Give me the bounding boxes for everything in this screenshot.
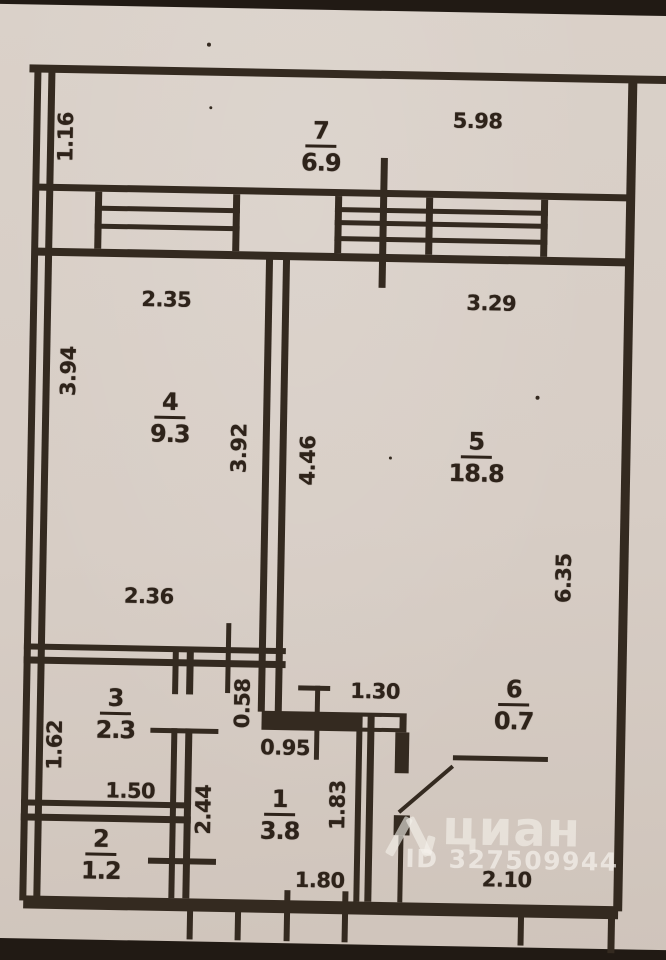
dim-room5-height-right: 6.35 [553, 553, 575, 603]
watermark-listing-id: ID 327509944 [405, 846, 619, 875]
room-label-1: 1 3.8 [260, 787, 301, 844]
window-a-jamb-left [94, 192, 102, 249]
room-number: 3 [100, 686, 131, 716]
dim-room3-height: 1.62 [44, 720, 66, 770]
wall-room3-room2-b [21, 813, 191, 823]
dim-room4-height-right: 3.92 [229, 423, 251, 473]
balcony-divider-line [379, 158, 388, 288]
room-label-3: 3 2.3 [95, 686, 136, 743]
entry-door-jamb [284, 890, 291, 941]
wall-closet3-right-upper [186, 651, 194, 694]
dim-room4-bottom: 2.36 [124, 586, 174, 608]
wall-room4-room5-left [258, 255, 273, 712]
dim-room4-width: 2.35 [141, 289, 191, 311]
bottom-tick [235, 906, 242, 940]
wall-room4-room5-right [275, 255, 290, 712]
wall-hall-duct-right [364, 714, 374, 902]
dimension-tick [148, 858, 216, 865]
wall-top [29, 64, 666, 84]
dim-room5-width: 3.29 [466, 293, 516, 315]
floor-plan-scan: 7 6.9 1.16 5.98 4 9.3 2.35 3.94 3.92 2.3… [0, 0, 666, 960]
room-number: 7 [306, 118, 337, 148]
dimension-tick [314, 686, 320, 760]
window-b-glass-line [335, 207, 548, 216]
room-number: 4 [155, 390, 186, 420]
wall-hall-duct-left [353, 713, 362, 901]
bottom-tick [607, 911, 615, 953]
dimension-tick [298, 685, 330, 691]
window-b-glass-line [335, 220, 548, 229]
dim-leg-height: 1.83 [327, 780, 349, 830]
room-area: 1.2 [81, 859, 121, 884]
wall-room4-bottom-b [24, 656, 286, 668]
ink-speck [209, 106, 212, 109]
dim-entry-wall: 1.80 [295, 870, 345, 892]
window-band-bottom [32, 247, 626, 266]
room-area: 6.9 [301, 150, 341, 175]
wall-right [613, 79, 637, 911]
window-a-glass-line [95, 206, 240, 214]
wall-bottom [23, 895, 618, 919]
room-label-4: 4 9.3 [150, 390, 191, 447]
dim-hall-height: 2.44 [193, 785, 215, 835]
wall-room4-bottom-a [24, 643, 286, 654]
room-label-5: 5 18.8 [448, 429, 504, 486]
room-area: 9.3 [150, 422, 190, 447]
window-a-glass-line [95, 224, 240, 232]
dim-room4-height-left: 3.94 [58, 346, 80, 396]
room-number: 6 [499, 677, 530, 707]
dim-closet6-door: 0.95 [260, 737, 310, 759]
door-tick [150, 728, 218, 734]
window-a-jamb-right [232, 194, 240, 251]
entry-door-jamb [342, 891, 349, 942]
door-jamb-upper [395, 732, 410, 773]
wall-closet6-opening [361, 717, 399, 729]
room-area: 2.3 [95, 718, 135, 743]
room6-leader-line [453, 755, 548, 762]
room-number: 2 [86, 826, 117, 856]
floor-plan: 7 6.9 1.16 5.98 4 9.3 2.35 3.94 3.92 2.3… [0, 0, 666, 960]
room-label-6: 6 0.7 [494, 677, 535, 734]
room-area: 3.8 [260, 819, 300, 844]
dim-room5-height-left: 4.46 [297, 435, 319, 485]
bottom-tick [187, 905, 194, 939]
window-band-top [33, 183, 627, 201]
dim-balcony-depth: 1.16 [55, 112, 77, 162]
wall-closet3-right-lower [168, 728, 177, 898]
room-number: 1 [264, 787, 295, 817]
room-area: 0.7 [494, 709, 534, 734]
room-area: 18.8 [448, 461, 504, 486]
dim-balcony-width: 5.98 [452, 111, 502, 133]
ink-speck [536, 396, 540, 400]
dim-closet6-depth: 0.58 [232, 678, 254, 728]
dim-closet6-width: 1.30 [350, 681, 400, 703]
window-b-glass-line [334, 236, 547, 245]
bottom-tick [518, 909, 525, 945]
ink-speck [207, 43, 211, 47]
wall-closet3-right-upper [172, 651, 179, 694]
room-label-2: 2 1.2 [81, 826, 122, 883]
room-number: 5 [461, 429, 492, 459]
dim-room2-width: 1.50 [105, 780, 155, 802]
room-label-balcony: 7 6.9 [301, 118, 342, 175]
ink-speck [389, 457, 392, 460]
